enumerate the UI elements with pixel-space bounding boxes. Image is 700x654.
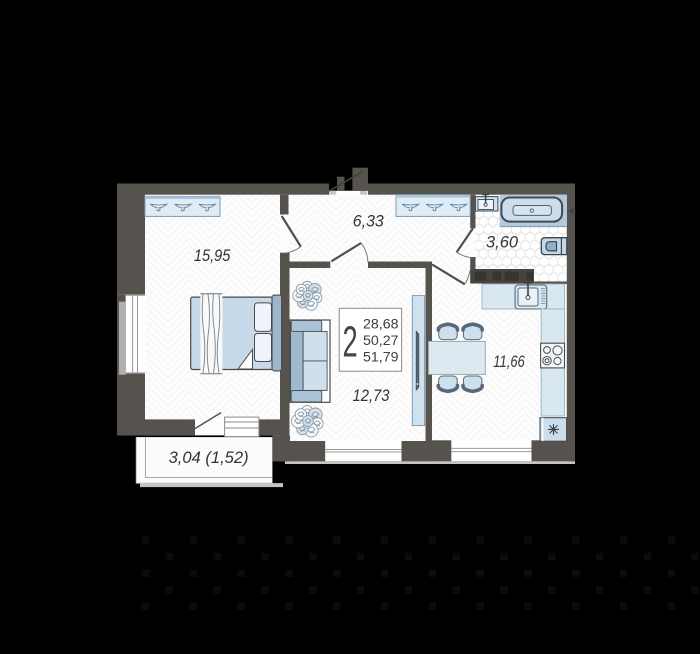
svg-text:15,95: 15,95 [194, 247, 231, 265]
svg-text:28,68: 28,68 [363, 316, 399, 332]
svg-text:3,60: 3,60 [486, 234, 519, 252]
svg-text:50,27: 50,27 [363, 333, 399, 349]
svg-text:12,73: 12,73 [353, 387, 391, 405]
svg-text:51,79: 51,79 [363, 349, 399, 365]
svg-text:2: 2 [343, 317, 358, 366]
svg-text:6,33: 6,33 [353, 212, 385, 230]
svg-text:11,66: 11,66 [493, 353, 525, 371]
svg-text:3,04 (1,52): 3,04 (1,52) [169, 449, 249, 467]
